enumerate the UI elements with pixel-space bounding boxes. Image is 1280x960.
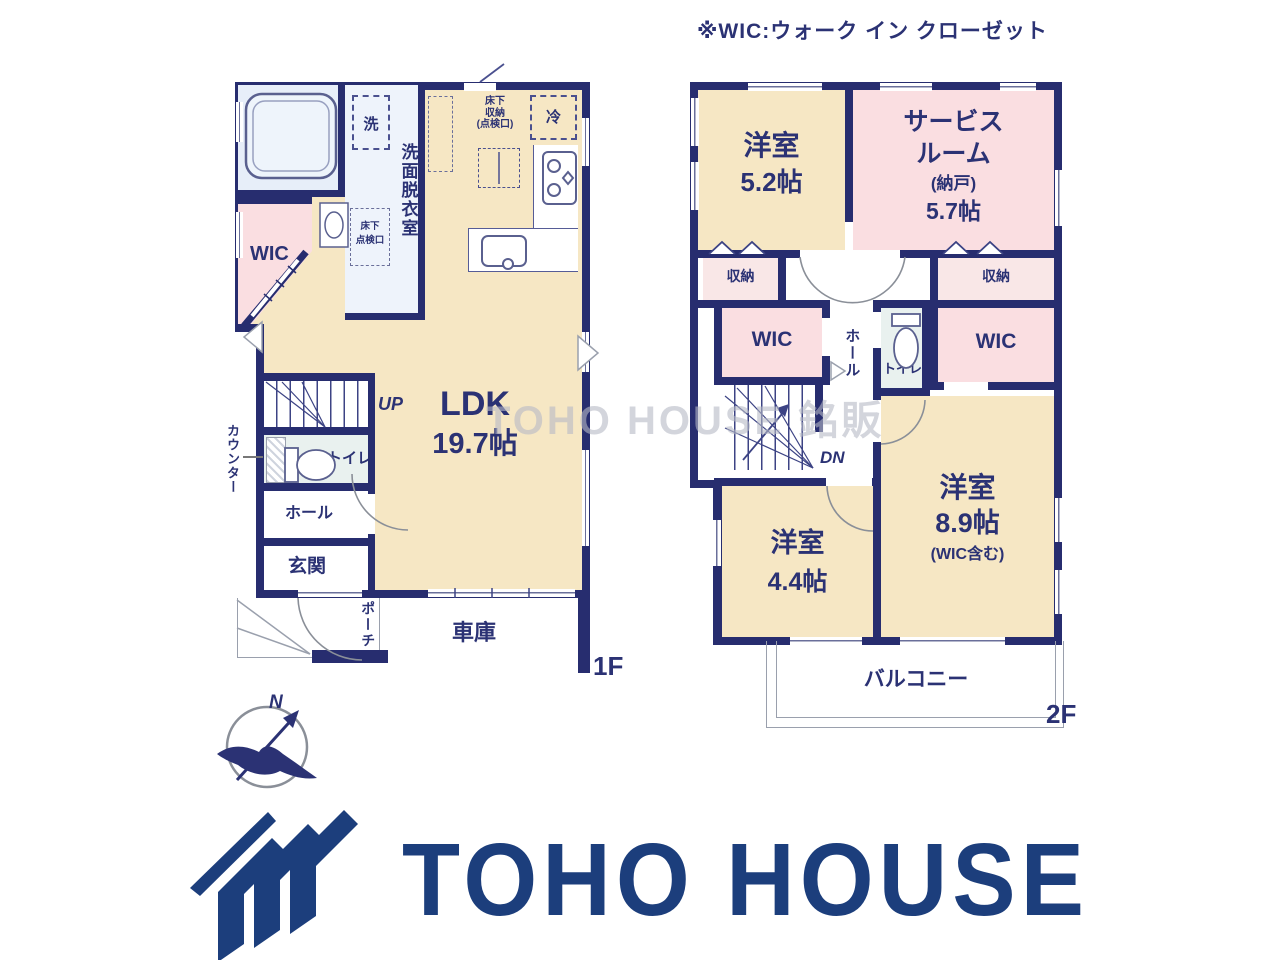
f2-hall-door-marker (831, 362, 845, 380)
compass-n-label: N (269, 692, 284, 713)
shutter-ticks (455, 588, 529, 598)
stove-icon (543, 152, 576, 204)
f2-landing-arc (800, 257, 905, 303)
watermark: TOHO HOUSE 銘販 (486, 398, 884, 444)
f1-hall-door-arc (352, 474, 408, 530)
bathtub-icon (246, 94, 336, 178)
bay-marker-right-icon (578, 336, 598, 370)
f1-stair-winders (266, 382, 325, 427)
porch-line-2 (237, 628, 310, 654)
kitchen-sink-icon (482, 236, 526, 269)
f1-toilet-icon (285, 448, 335, 482)
wic-note: ※WIC:ウォーク イン クローゼット (697, 20, 1048, 44)
floorplan-page: ※WIC:ウォーク イン クローゼット UB 洗 床下 点検口 洗面脱衣室 WI… (0, 0, 1280, 960)
vanity-sink-icon (320, 203, 348, 247)
f2-room44-door-arc (827, 486, 873, 531)
toho-house-logo-text: TOHO HOUSE (402, 822, 1089, 940)
f1-kitchen-door-line (480, 64, 504, 82)
wic-diagonal-door (244, 252, 306, 326)
f2-toilet-icon (892, 314, 920, 368)
compass-icon: N (205, 692, 335, 797)
f1-front-door-arc (298, 598, 362, 660)
closet-caret-icons (709, 242, 1003, 254)
f2-room89-door-arc (881, 400, 925, 444)
toho-house-logo-mark (188, 792, 398, 960)
f1-overlay-drawing (230, 60, 640, 692)
